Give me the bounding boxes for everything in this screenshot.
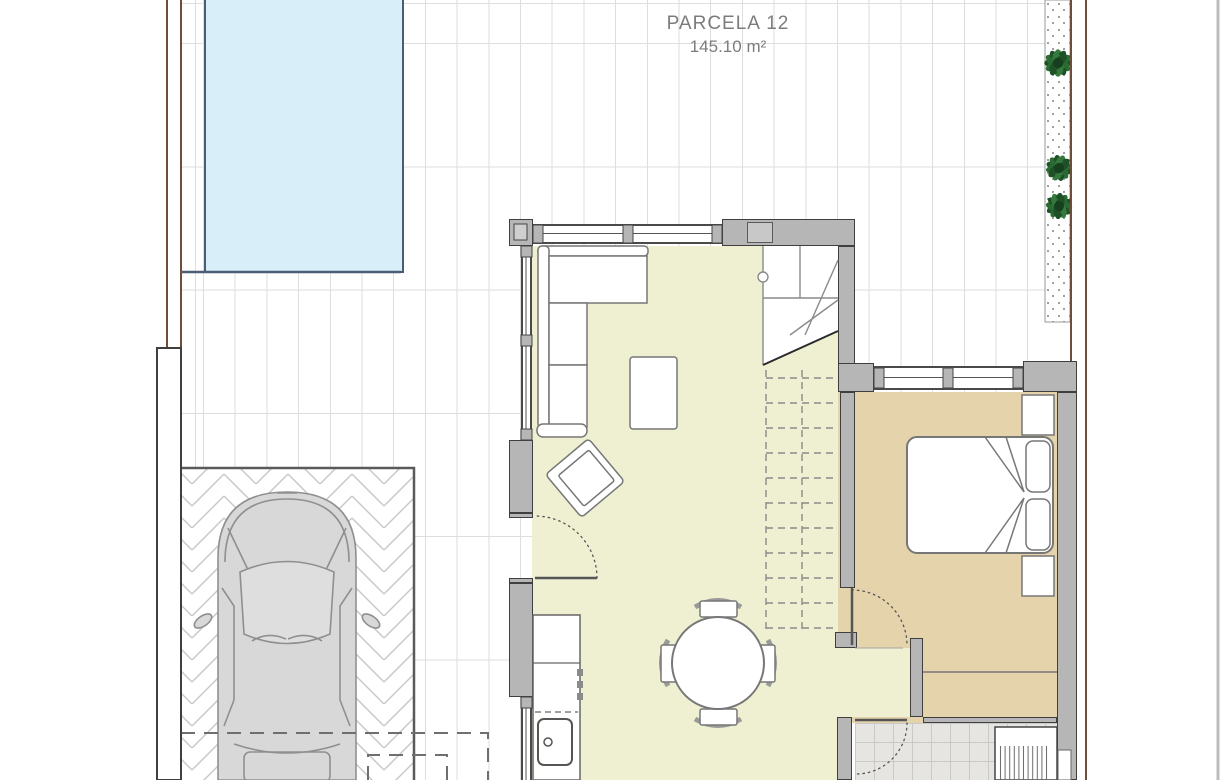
plant-bush xyxy=(1043,48,1072,77)
window-living-west xyxy=(521,246,532,440)
parcel-title: PARCELA 12 xyxy=(600,12,856,36)
wall-north-pillar xyxy=(747,222,773,243)
wall-north xyxy=(722,219,855,246)
planter-strip xyxy=(1041,0,1078,322)
living-room-floor xyxy=(532,246,838,780)
parcel-label: PARCELA 12 145.10 m² xyxy=(600,12,856,58)
wall-west-upper xyxy=(509,440,533,513)
wall-west-lower xyxy=(509,583,533,697)
wall-bedroom-ne xyxy=(1023,361,1077,392)
wall-bedroom-east xyxy=(1057,392,1077,780)
hallway-floor xyxy=(838,648,910,717)
parcel-area: 145.10 m² xyxy=(600,36,856,58)
wall-stairwell-east xyxy=(838,246,855,365)
wall-nw-corner xyxy=(509,219,533,246)
bathroom-floor-tiles xyxy=(855,723,1057,780)
wall-bathroom-west xyxy=(837,717,852,780)
wall-bathroom-north xyxy=(923,717,1057,723)
plant-bush xyxy=(1041,188,1078,225)
wall-bedroom-west xyxy=(840,392,855,588)
window-bedroom-north xyxy=(874,366,1023,390)
boundary-wall-left xyxy=(157,348,181,780)
wall-bedroom-nw xyxy=(838,363,874,392)
plant-bush xyxy=(1041,150,1077,186)
floor-plan-canvas: PARCELA 12 145.10 m² xyxy=(0,0,1228,780)
bedroom-door-jamb xyxy=(835,632,857,648)
window-living-north xyxy=(533,224,722,244)
window-kitchen-west xyxy=(521,697,532,780)
swimming-pool xyxy=(204,0,404,273)
wall-hall-closet xyxy=(910,638,923,717)
entry-door-jamb-top xyxy=(509,513,533,518)
